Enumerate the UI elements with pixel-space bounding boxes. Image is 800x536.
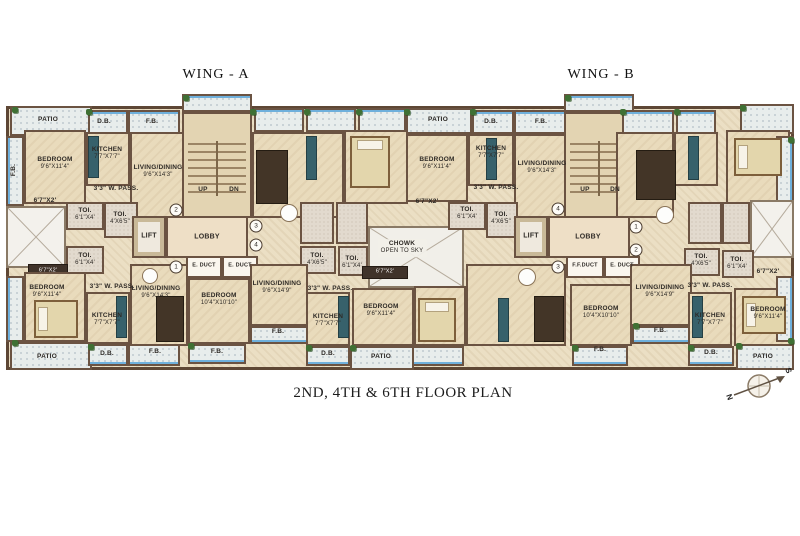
label-kitchen: KITCHEN7'7"X7'7" [476, 145, 506, 161]
label-line: 6'7"X2' [757, 268, 780, 276]
balcony [358, 108, 406, 132]
label-line: PATIO [428, 116, 448, 124]
stair-landing-a [182, 94, 252, 112]
label-line: TOI. [491, 211, 511, 219]
label-f-b: F.B. [535, 118, 547, 126]
label-line: TOI. [307, 252, 327, 260]
wing-b-title: WING - B [567, 67, 634, 83]
label-d-b: D.B. [321, 350, 335, 358]
label-line: 9'6"X11'4" [419, 164, 454, 172]
stair-divider [216, 141, 218, 196]
pillow [38, 307, 48, 331]
label-lobby: LOBBY [194, 234, 220, 243]
label-line: 3'3" W. PASS. [688, 282, 733, 290]
plant-icon [12, 340, 18, 346]
sofa-icon [534, 296, 564, 342]
label-patio: PATIO [371, 353, 391, 361]
label-line: F.B. [211, 348, 223, 356]
label-dn: DN [610, 186, 620, 194]
label-lift: LIFT [141, 233, 157, 242]
label-line: PATIO [37, 353, 57, 361]
plant-icon [250, 109, 256, 115]
label-f-b: F.B. [211, 348, 223, 356]
label-line: E. DUCT [228, 263, 251, 270]
dining-table-icon [656, 206, 674, 224]
label-line: 3'3" W. PASS. [308, 285, 353, 293]
label-line: 9'6"X11'4" [29, 292, 64, 300]
label-line: 6'7"X2' [34, 197, 57, 205]
label-line: BEDROOM [363, 303, 398, 311]
label-line: D.B. [484, 118, 498, 126]
label-line: 3'3" W. PASS. [94, 185, 139, 193]
label-6-7-x2: 6'7"X2' [39, 268, 57, 275]
label-line: 10'4"X10'10" [201, 300, 237, 308]
label-toi: TOI.6'1"X4' [75, 252, 95, 268]
label-toi: TOI.6'1"X4' [457, 206, 477, 222]
label-e-duct: E. DUCT [228, 263, 251, 270]
label-living-dining: LIVING/DINING9'6"X14'3" [518, 160, 567, 176]
kitchen-counter [688, 136, 699, 180]
label-line: 9'6"X14'3" [518, 168, 567, 176]
label-toi: TOI.6'1"X4' [727, 256, 747, 272]
label-line: LIFT [141, 233, 157, 242]
plant-icon [306, 345, 312, 351]
label-up: UP [580, 186, 589, 194]
fb-top-3 [622, 110, 674, 134]
label-6-7-x2: 6'7"X2' [376, 269, 394, 276]
label-line: F.B. [594, 346, 606, 354]
label-bedroom: BEDROOM10'4"X10'10" [583, 305, 619, 321]
plant-icon [88, 344, 94, 350]
label-living-dining: LIVING/DINING9'6"X14'3" [134, 164, 183, 180]
label-line: CHOWK [381, 240, 424, 248]
label-line: BEDROOM [29, 284, 64, 292]
flat-number-circle: 3 [250, 220, 263, 233]
label-line: 9'6"X14'3" [134, 172, 183, 180]
label-line: 7'7"X7'7" [313, 321, 343, 329]
label-line: 4'X6'5" [307, 260, 327, 268]
label-living-dining: LIVING/DINING9'6"X14'9" [636, 284, 685, 300]
label-line: F.B. [654, 327, 666, 335]
shaft-left [6, 206, 66, 268]
plant-icon [736, 343, 742, 349]
label-kitchen: KITCHEN7'7"X7'7" [695, 312, 725, 328]
pillow [357, 140, 382, 150]
plant-icon [12, 107, 18, 113]
label-line: E. DUCT [192, 263, 215, 270]
plant-icon [674, 109, 680, 115]
pillow [738, 145, 748, 169]
label-line: UP [580, 186, 589, 194]
label-line: KITCHEN [476, 145, 506, 153]
label-f-b: F.B. [272, 328, 284, 336]
plant-icon [470, 109, 476, 115]
label-line: TOI. [727, 256, 747, 264]
plant-icon [620, 109, 626, 115]
balcony [412, 346, 464, 366]
label-kitchen: KITCHEN7'7"X7'7" [92, 312, 122, 328]
label-line: KITCHEN [695, 312, 725, 320]
sofa-icon [156, 296, 184, 342]
shaft-right [750, 200, 794, 258]
label-d-b: D.B. [484, 118, 498, 126]
label-line: 9'6"X14'9" [636, 292, 685, 300]
toilet [688, 202, 722, 244]
label-line: LOBBY [575, 234, 601, 243]
fb-left-bottom [6, 276, 24, 342]
sofa-icon [256, 150, 288, 204]
label-6-7-x2: 6'7"X2' [757, 268, 780, 276]
label-line: 7'7"X7'7" [695, 320, 725, 328]
plant-icon [350, 345, 356, 351]
bed-icon [734, 138, 782, 176]
label-line: D.B. [97, 118, 111, 126]
bed-icon [418, 298, 456, 342]
label-d-b: D.B. [704, 349, 718, 357]
plant-icon [633, 323, 639, 329]
label-line: D.B. [321, 350, 335, 358]
label-patio: PATIO [37, 353, 57, 361]
plant-icon [788, 338, 794, 344]
label-3-3-w-pass: 3'3" W. PASS. [308, 285, 353, 293]
label-living-dining: LIVING/DINING9'6"X14'9" [253, 280, 302, 296]
plant-icon [356, 109, 362, 115]
label-line: BEDROOM [37, 156, 72, 164]
label-line: D.B. [100, 350, 114, 358]
flat-number-circle: 3 [552, 261, 565, 274]
label-line: 6'1"X4' [457, 214, 477, 222]
flat-number-circle: 4 [552, 203, 565, 216]
toilet [722, 202, 750, 244]
label-line: BEDROOM [201, 292, 237, 300]
label-line: 3'3" W. PASS. [474, 184, 519, 192]
label-line: BEDROOM [750, 306, 785, 314]
label-f-b: F.B. [594, 346, 606, 354]
label-line: PATIO [38, 116, 58, 124]
label-line: 6'7"X2' [376, 269, 394, 276]
pillow [425, 302, 449, 312]
dining-table-icon [518, 268, 536, 286]
label-bedroom: BEDROOM9'6"X11'4" [750, 306, 785, 322]
plant-icon [572, 345, 578, 351]
label-line: 10'4"X10'10" [583, 313, 619, 321]
label-line: F.B. [272, 328, 284, 336]
label-line: 7'7"X7'7" [92, 154, 122, 162]
label-line: LOBBY [194, 234, 220, 243]
label-line: 4'X6'5" [110, 219, 130, 227]
db-top-3 [676, 110, 716, 134]
label-patio: PATIO [753, 353, 773, 361]
plant-icon [183, 95, 189, 101]
label-6-7-x2: 6'7"X2' [416, 198, 439, 206]
label-line: 6'1"X4' [342, 263, 362, 271]
label-line: F.B. [10, 164, 18, 176]
label-line: PATIO [371, 353, 391, 361]
label-lobby: LOBBY [575, 234, 601, 243]
label-line: 4'X6'5" [491, 219, 511, 227]
plan-title: 2ND, 4TH & 6TH FLOOR PLAN [293, 385, 512, 402]
kitchen-counter [306, 136, 317, 180]
flat-number-circle: 4 [250, 239, 263, 252]
label-line: BEDROOM [419, 156, 454, 164]
kitchen-counter [498, 298, 509, 342]
label-6-7-x2: 6'7"X2' [34, 197, 57, 205]
label-toi: TOI.4'X6'5" [307, 252, 327, 268]
label-line: DN [610, 186, 620, 194]
label-line: UP [198, 186, 207, 194]
label-line: F.B. [146, 118, 158, 126]
label-d-b: D.B. [97, 118, 111, 126]
label-e-duct: E. DUCT [610, 263, 633, 270]
label-3-3-w-pass: 3'3" W. PASS. [94, 185, 139, 193]
label-line: PATIO [753, 353, 773, 361]
label-toi: TOI.4'X6'5" [691, 253, 711, 269]
label-f-b: F.B. [10, 164, 18, 176]
compass-south-label: S [783, 366, 794, 375]
plant-icon [565, 95, 571, 101]
floor-plan-canvas: PATIOD.B.F.B.F.B.BEDROOM9'6"X11'4"KITCHE… [0, 0, 800, 536]
label-kitchen: KITCHEN7'7"X7'7" [313, 313, 343, 329]
label-line: 6'1"X4' [727, 264, 747, 272]
label-toi: TOI.4'X6'5" [491, 211, 511, 227]
label-toi: TOI.6'1"X4' [75, 207, 95, 223]
label-line: KITCHEN [92, 146, 122, 154]
label-bedroom: BEDROOM9'6"X11'4" [37, 156, 72, 172]
label-line: 6'1"X4' [75, 215, 95, 223]
label-line: F.B. [149, 348, 161, 356]
staircase-a [182, 112, 252, 218]
label-line: KITCHEN [313, 313, 343, 321]
label-line: LIVING/DINING [636, 284, 685, 292]
bed-icon [350, 136, 390, 188]
label-line: BEDROOM [583, 305, 619, 313]
label-line: LIVING/DINING [134, 164, 183, 172]
bedroom-wing-a-bottom [188, 278, 250, 344]
label-up: UP [198, 186, 207, 194]
label-patio: PATIO [38, 116, 58, 124]
label-line: F.B. [535, 118, 547, 126]
bed-icon [34, 300, 78, 338]
toilet [336, 202, 368, 244]
label-e-duct: E. DUCT [192, 263, 215, 270]
label-line: 3'3" W. PASS. [90, 283, 135, 291]
label-patio: PATIO [428, 116, 448, 124]
label-line: LIFT [523, 233, 539, 242]
label-line: 9'6"X14'3" [132, 293, 181, 301]
label-line: 7'7"X7'7" [92, 320, 122, 328]
label-f-b: F.B. [146, 118, 158, 126]
label-line: 6'7"X2' [416, 198, 439, 206]
label-line: TOI. [75, 207, 95, 215]
label-chowk: CHOWKOPEN TO SKY [378, 239, 427, 257]
label-line: TOI. [457, 206, 477, 214]
label-f-b: F.B. [149, 348, 161, 356]
label-line: 7'7"X7'7" [476, 153, 506, 161]
label-line: 9'6"X11'4" [37, 164, 72, 172]
label-line: DN [229, 186, 239, 194]
plant-icon [740, 105, 746, 111]
balcony [306, 108, 356, 132]
label-line: TOI. [110, 211, 130, 219]
label-line: 4'X6'5" [691, 261, 711, 269]
dining-table-icon [142, 268, 158, 284]
label-bedroom: BEDROOM9'6"X11'4" [363, 303, 398, 319]
label-bedroom: BEDROOM9'6"X11'4" [29, 284, 64, 300]
label-line: 9'6"X11'4" [363, 311, 398, 319]
label-bedroom: BEDROOM10'4"X10'10" [201, 292, 237, 308]
label-kitchen: KITCHEN7'7"X7'7" [92, 146, 122, 162]
label-bedroom: BEDROOM9'6"X11'4" [419, 156, 454, 172]
plant-icon [788, 137, 794, 143]
label-3-3-w-pass: 3'3" W. PASS. [688, 282, 733, 290]
label-line: D.B. [704, 349, 718, 357]
plant-icon [86, 109, 92, 115]
label-toi: TOI.6'1"X4' [342, 255, 362, 271]
label-3-3-w-pass: 3'3" W. PASS. [90, 283, 135, 291]
flat-number-circle: 2 [170, 204, 183, 217]
label-f-f-duct: F.F.DUCT [572, 263, 597, 270]
label-line: 6'7"X2' [39, 268, 57, 275]
label-line: F.F.DUCT [572, 263, 597, 270]
label-line: TOI. [691, 253, 711, 261]
label-line: E. DUCT [610, 263, 633, 270]
label-line: 6'1"X4' [75, 260, 95, 268]
plant-icon [404, 109, 410, 115]
flat-number-circle: 2 [630, 244, 643, 257]
compass-north-label: N [724, 393, 735, 402]
label-dn: DN [229, 186, 239, 194]
toilet [300, 202, 334, 244]
label-line: KITCHEN [92, 312, 122, 320]
wing-a-title: WING - A [182, 67, 249, 83]
plant-icon [688, 345, 694, 351]
label-living-dining: LIVING/DINING9'6"X14'3" [132, 285, 181, 301]
compass-icon: N S [722, 362, 794, 408]
flat-number-circle: 1 [630, 221, 643, 234]
label-toi: TOI.4'X6'5" [110, 211, 130, 227]
plant-icon [188, 343, 194, 349]
dining-table-icon [280, 204, 298, 222]
label-line: 9'6"X11'4" [750, 314, 785, 322]
flat-number-circle: 1 [170, 261, 183, 274]
label-lift: LIFT [523, 233, 539, 242]
sofa-icon [636, 150, 676, 200]
label-d-b: D.B. [100, 350, 114, 358]
label-line: OPEN TO SKY [381, 248, 424, 256]
label-f-b: F.B. [654, 327, 666, 335]
plant-icon [304, 109, 310, 115]
label-line: TOI. [342, 255, 362, 263]
label-3-3-w-pass: 3'3" W. PASS. [474, 184, 519, 192]
balcony [254, 108, 304, 132]
label-line: LIVING/DINING [253, 280, 302, 288]
label-line: LIVING/DINING [132, 285, 181, 293]
stair-divider [598, 141, 600, 196]
label-line: TOI. [75, 252, 95, 260]
label-line: LIVING/DINING [518, 160, 567, 168]
label-line: 9'6"X14'9" [253, 288, 302, 296]
